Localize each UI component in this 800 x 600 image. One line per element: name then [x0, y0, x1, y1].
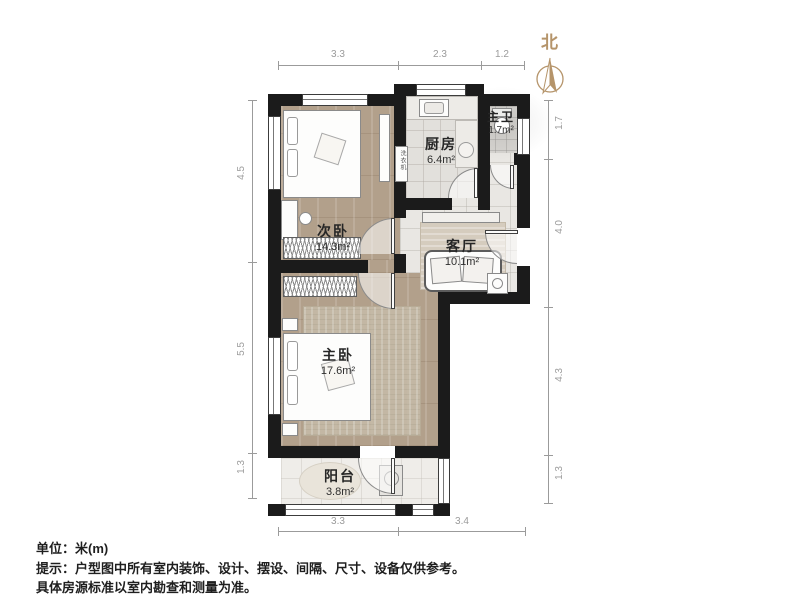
toilet-tank — [492, 108, 512, 117]
window-bedroom-top — [302, 94, 368, 106]
wall-between-bedrooms — [268, 260, 368, 273]
tv-cabinet — [422, 212, 500, 223]
wardrobe-master — [283, 276, 357, 297]
door-leaf-balcony — [391, 458, 395, 494]
pillow — [287, 117, 298, 145]
chair — [299, 212, 312, 225]
window-balcony-bottom-2 — [412, 504, 434, 516]
wall-bedroom-kitchen-chunk — [394, 254, 406, 273]
dim-bottom-2: 3.4 — [455, 516, 469, 527]
sink-basin — [424, 102, 444, 114]
north-indicator: 北 — [528, 28, 572, 112]
wall-kitchen-bottom — [400, 198, 452, 210]
pillow — [287, 149, 298, 177]
dim-right-1: 1.7 — [554, 116, 565, 130]
compass-icon — [530, 53, 570, 107]
dim-left-3: 1.3 — [236, 460, 247, 474]
note-tip2: 具体房源标准以室内勘查和测量为准。 — [36, 578, 465, 598]
wall-master-right — [438, 273, 450, 458]
window-kitchen-top — [416, 84, 466, 96]
wall-living-bottom — [438, 292, 530, 304]
dim-right-2: 4.0 — [554, 220, 565, 234]
door-leaf-kitchen — [474, 168, 478, 198]
window-bedroom-left — [268, 116, 281, 190]
pillow — [287, 375, 298, 405]
balcony-corner-2 — [396, 504, 412, 516]
window-master-left — [268, 337, 281, 415]
desk — [281, 200, 298, 240]
window-bathroom-right — [517, 118, 530, 155]
door-leaf-secondary-bedroom — [391, 218, 395, 254]
wall-kitchen-bath — [478, 96, 490, 210]
stove — [458, 142, 474, 158]
window-balcony-bottom — [285, 504, 396, 516]
side-table-decor — [492, 278, 503, 289]
dim-left-1: 4.5 — [236, 166, 247, 180]
door-leaf-entry — [485, 230, 518, 234]
note-unit: 单位：米(m) — [36, 539, 465, 559]
dim-top-3: 1.2 — [495, 49, 509, 60]
dimension-line-top: 3.3 2.3 1.2 — [278, 65, 524, 66]
north-label: 北 — [528, 28, 572, 53]
floor-plan: 洗衣机 次卧 14.3m² 厨房 6.4m² 主卫 1.7m² 客厅 10.1m… — [0, 0, 800, 600]
dimension-line-left: 4.5 5.5 1.3 — [252, 100, 253, 498]
dim-top-2: 2.3 — [433, 49, 447, 60]
window-balcony-right — [438, 458, 450, 504]
dim-top-1: 3.3 — [331, 49, 345, 60]
doorway-floor — [368, 260, 394, 273]
nightstand — [282, 423, 298, 436]
wall-balcony-left — [268, 446, 360, 458]
dimension-line-right: 1.7 4.0 4.3 1.3 — [548, 100, 549, 503]
dim-right-4: 1.3 — [554, 466, 565, 480]
dimension-line-bottom: 3.3 3.4 — [278, 531, 525, 532]
notes-block: 单位：米(m) 提示：户型图中所有室内装饰、设计、摆设、间隔、尺寸、设备仅供参考… — [36, 539, 465, 598]
toilet-bowl — [494, 117, 510, 134]
wall-balcony-right — [395, 446, 438, 458]
balcony-mat — [299, 462, 361, 500]
dim-left-2: 5.5 — [236, 342, 247, 356]
door-leaf-bathroom — [510, 165, 514, 189]
washing-machine-label: 洗衣机 — [399, 150, 405, 171]
dim-right-3: 4.3 — [554, 368, 565, 382]
balcony-corner-1 — [268, 504, 285, 516]
tv-board-secondary — [379, 114, 390, 182]
balcony-corner-3 — [434, 504, 450, 516]
pillow — [287, 341, 298, 371]
washing-machine: 洗衣机 — [395, 146, 408, 182]
sofa-cushion — [430, 256, 462, 285]
door-leaf-master-bedroom — [391, 273, 395, 309]
note-tip: 提示：户型图中所有室内装饰、设计、摆设、间隔、尺寸、设备仅供参考。 — [36, 559, 465, 579]
dim-bottom-1: 3.3 — [331, 516, 345, 527]
nightstand — [282, 318, 298, 331]
wardrobe-secondary — [283, 237, 361, 259]
